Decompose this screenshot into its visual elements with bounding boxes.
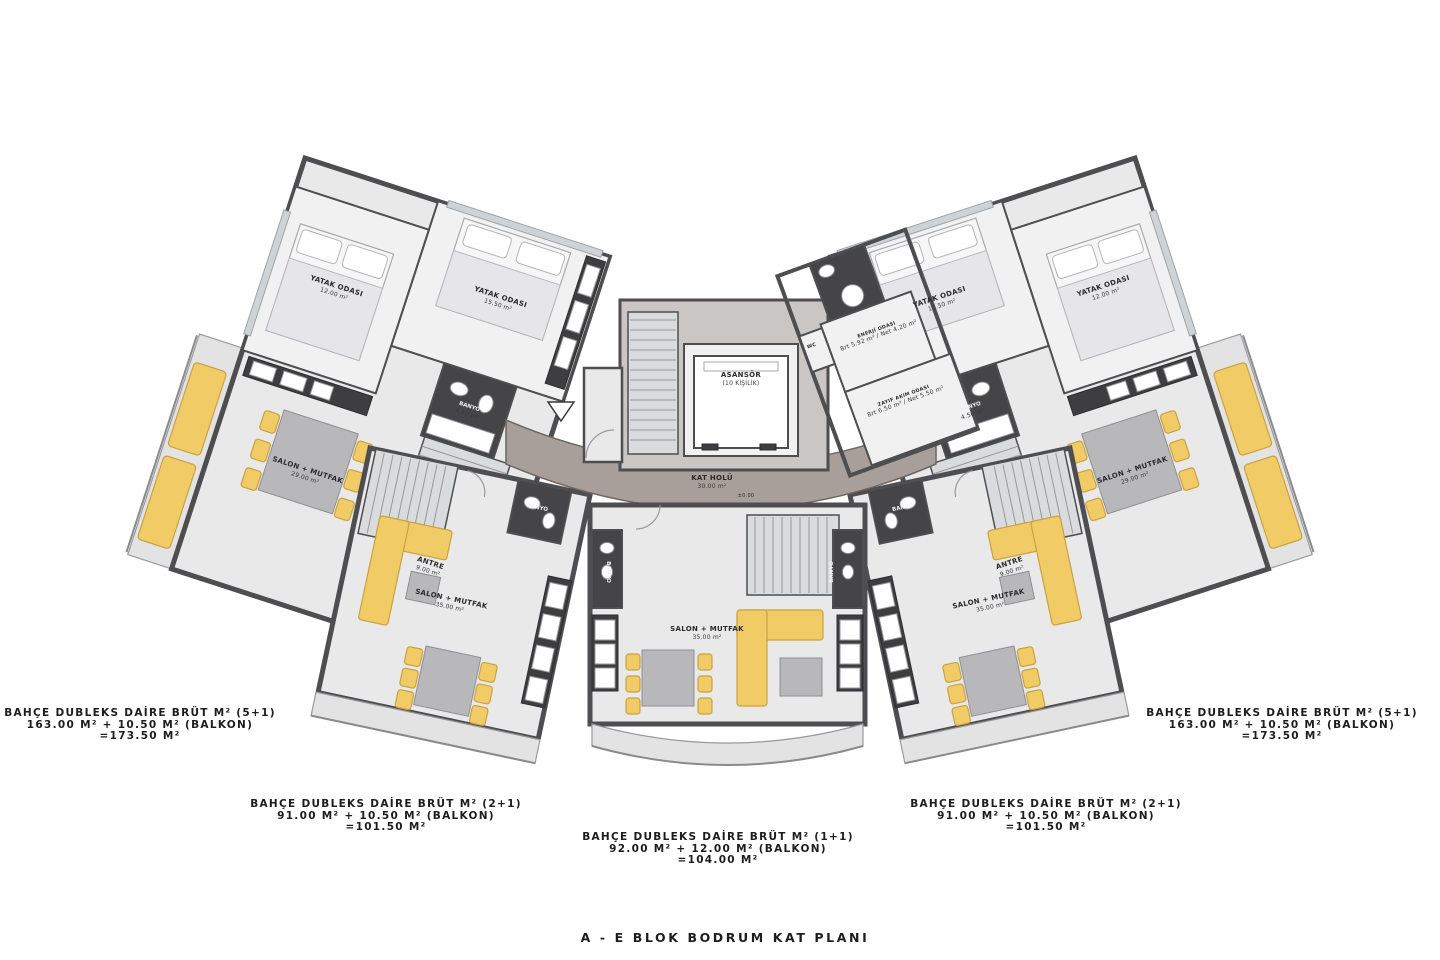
floor-plan-canvas: YATAK ODASI15.50 m²YATAK ODASI15.50 m²YA… — [0, 0, 1440, 960]
sink — [600, 543, 614, 554]
chair — [1021, 668, 1040, 689]
chair — [698, 698, 712, 714]
chair — [478, 662, 497, 683]
chair — [626, 654, 640, 670]
room-label-group: BANYO — [829, 561, 835, 583]
unit-area-line1: BAHÇE DUBLEKS DAİRE BRÜT M² (1+1) — [582, 832, 854, 844]
toilet — [843, 565, 854, 579]
unit-area-label-left-2plus1: BAHÇE DUBLEKS DAİRE BRÜT M² (2+1) 91.00 … — [250, 799, 522, 834]
elevator-door — [760, 444, 776, 450]
room-name-label: KAT HOLÜ — [691, 473, 733, 482]
chair — [395, 689, 414, 710]
unit-area-label-right-5plus1: BAHÇE DUBLEKS DAİRE BRÜT M² (5+1) 163.00… — [1146, 708, 1418, 743]
dining-table — [414, 646, 481, 716]
counter-unit — [595, 668, 615, 688]
chair — [698, 676, 712, 692]
chair — [942, 662, 961, 683]
unit-center-1plus1 — [590, 505, 865, 765]
unit-area-line1: BAHÇE DUBLEKS DAİRE BRÜT M² (5+1) — [4, 708, 276, 720]
unit-area-line3: =173.50 M² — [4, 731, 276, 743]
bathroom-floor — [869, 480, 933, 544]
room-label-group: BANYO — [605, 561, 611, 583]
room-area-label: 30.00 m² — [698, 483, 727, 490]
unit-area-label-center-1plus1: BAHÇE DUBLEKS DAİRE BRÜT M² (1+1) 92.00 … — [582, 832, 854, 867]
chair — [1026, 689, 1045, 710]
room-name-label: BANYO — [829, 561, 835, 583]
counter-unit — [840, 644, 860, 664]
bathroom-floor — [507, 480, 571, 544]
chair — [474, 683, 493, 704]
room-area-label: 35.00 m² — [693, 634, 722, 641]
chair — [1017, 646, 1036, 667]
counter-unit — [840, 668, 860, 688]
room-name-label: BANYO — [605, 561, 611, 583]
balcony-floor — [592, 724, 863, 765]
chair — [399, 668, 418, 689]
unit-area-line3: =104.00 M² — [582, 855, 854, 867]
counter-unit — [595, 644, 615, 664]
dining-table — [642, 650, 694, 706]
room-name-label: SALON + MUTFAK — [670, 625, 744, 633]
chair — [952, 705, 971, 726]
core-staircase — [628, 312, 678, 454]
counter-unit — [595, 620, 615, 640]
room-area-label: (10 KİŞİLİK) — [723, 380, 760, 387]
unit-area-label-left-5plus1: BAHÇE DUBLEKS DAİRE BRÜT M² (5+1) 163.00… — [4, 708, 276, 743]
unit-area-line3: =101.50 M² — [250, 822, 522, 834]
plan-title: A - E BLOK BODRUM KAT PLANI — [581, 930, 870, 945]
counter-unit — [840, 620, 860, 640]
coffee-table — [780, 658, 822, 696]
floor-plan-page: YATAK ODASI15.50 m²YATAK ODASI15.50 m²YA… — [0, 0, 1440, 960]
room-name-label: ±0.00 — [738, 493, 755, 499]
sink — [841, 543, 855, 554]
unit-area-line1: BAHÇE DUBLEKS DAİRE BRÜT M² (5+1) — [1146, 708, 1418, 720]
chair — [947, 683, 966, 704]
dining-table — [959, 646, 1026, 716]
entrance-vestibule — [584, 368, 622, 462]
elevator-car — [694, 356, 788, 448]
unit-area-line1: BAHÇE DUBLEKS DAİRE BRÜT M² (2+1) — [910, 799, 1182, 811]
elevator-door — [702, 444, 718, 450]
unit-area-line3: =173.50 M² — [1146, 731, 1418, 743]
chair — [626, 676, 640, 692]
room-name-label: ASANSÖR — [721, 370, 762, 379]
unit-area-line3: =101.50 M² — [910, 822, 1182, 834]
chair — [626, 698, 640, 714]
level-marker: ±0.00 — [738, 493, 755, 499]
unit-area-line1: BAHÇE DUBLEKS DAİRE BRÜT M² (2+1) — [250, 799, 522, 811]
staircase — [747, 515, 839, 595]
chair — [698, 654, 712, 670]
chair — [469, 705, 488, 726]
room-label-group: ASANSÖR(10 KİŞİLİK) — [721, 370, 762, 387]
unit-area-label-right-2plus1: BAHÇE DUBLEKS DAİRE BRÜT M² (2+1) 91.00 … — [910, 799, 1182, 834]
chair — [404, 646, 423, 667]
